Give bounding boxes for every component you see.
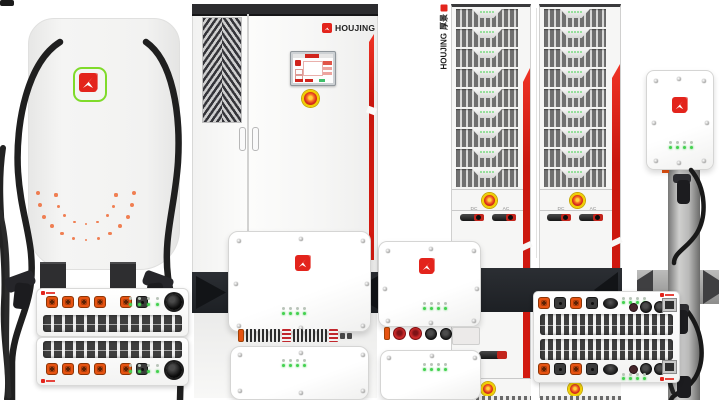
cooling-fan-icon	[166, 294, 182, 310]
status-led	[156, 303, 159, 306]
status-led	[629, 377, 632, 380]
led-pair	[129, 364, 132, 373]
cooling-fan-icon	[166, 362, 182, 378]
screw	[429, 247, 433, 251]
led-row	[622, 297, 646, 300]
connector-stripes	[317, 329, 327, 342]
vent-grille	[43, 315, 182, 332]
status-led	[289, 312, 292, 315]
status-led	[444, 307, 447, 310]
status-led	[622, 297, 625, 300]
wide-power-module	[533, 291, 680, 383]
status-led	[643, 297, 646, 300]
houjing-bird-icon	[422, 261, 431, 271]
mini-logo-icon	[660, 377, 664, 381]
connector-orange	[538, 363, 550, 375]
status-led	[282, 359, 285, 362]
pedestal-gun-body	[677, 180, 690, 204]
status-led	[147, 370, 150, 373]
screw	[299, 351, 303, 355]
screw	[472, 319, 476, 323]
screw	[475, 287, 479, 291]
status-led	[622, 377, 625, 380]
connector-maroon	[629, 303, 638, 312]
screw	[237, 324, 241, 328]
connector-orange	[46, 296, 58, 308]
connector-dark	[554, 363, 566, 375]
status-leds	[423, 302, 447, 310]
houjing-mini-logo	[660, 377, 674, 381]
status-led	[303, 312, 306, 315]
round-connectors-top	[629, 301, 666, 313]
square-connector	[663, 361, 676, 373]
status-led	[129, 303, 132, 306]
vent-grille	[540, 314, 673, 335]
status-led	[423, 307, 426, 310]
status-led	[129, 297, 132, 300]
screw	[386, 249, 390, 253]
status-led	[282, 312, 285, 315]
screw	[473, 356, 477, 360]
status-led	[423, 368, 426, 371]
mini-logo-icon	[660, 293, 664, 297]
status-led	[156, 297, 159, 300]
square-connector	[663, 299, 676, 311]
connector-row-top	[538, 297, 598, 309]
led-row	[423, 302, 447, 305]
led-row	[282, 307, 306, 310]
screw	[234, 282, 238, 286]
status-led	[636, 373, 639, 376]
status-leds	[282, 359, 306, 367]
vent-grille	[540, 339, 673, 360]
led-row	[622, 377, 646, 380]
status-led	[622, 301, 625, 304]
mini-logo-icon	[41, 291, 45, 295]
connector-small	[347, 333, 352, 339]
rotary-knob-icon	[603, 298, 618, 309]
connector-orange	[570, 363, 582, 375]
rectifier-module-stack	[34, 287, 189, 387]
mini-logo-text	[46, 292, 55, 294]
screw	[383, 287, 387, 291]
status-led	[629, 373, 632, 376]
screw	[237, 239, 241, 243]
connector-orange	[78, 296, 90, 308]
status-led	[282, 307, 285, 310]
houjing-mini-logo	[660, 293, 674, 297]
led-pair	[129, 297, 132, 306]
status-led	[147, 364, 150, 367]
connector-stripes	[270, 329, 280, 342]
status-led	[636, 377, 639, 380]
status-led	[444, 363, 447, 366]
status-led	[303, 364, 306, 367]
connector-stripes	[258, 329, 268, 342]
connector-orange-cap	[238, 329, 244, 342]
led-pair	[156, 364, 159, 373]
connector-orange	[46, 363, 58, 375]
status-led	[430, 307, 433, 310]
status-led-groups	[129, 297, 159, 306]
mini-logo-text	[665, 294, 674, 296]
houjing-mini-logo	[41, 291, 55, 295]
status-led	[430, 302, 433, 305]
terminal-cover	[452, 327, 480, 345]
connector-gap	[110, 302, 116, 303]
status-led	[138, 297, 141, 300]
mini-logo-text	[46, 380, 55, 382]
mini-logo-icon	[41, 379, 45, 383]
led-row	[622, 373, 646, 376]
houjing-mini-logo	[41, 379, 55, 383]
status-led	[289, 364, 292, 367]
status-led	[437, 302, 440, 305]
status-led	[282, 364, 285, 367]
product-collage: HOUJING HOUJING 厚景	[0, 0, 719, 400]
connector-orange	[78, 363, 90, 375]
connector-stripes	[293, 329, 303, 342]
connector-dark-circle	[440, 328, 452, 340]
status-led	[129, 364, 132, 367]
screw	[238, 353, 242, 357]
screw	[429, 321, 433, 325]
connector-dark	[554, 297, 566, 309]
mini-logo-text	[665, 378, 674, 380]
wallbox-inverter	[228, 231, 371, 332]
status-led	[423, 302, 426, 305]
screw	[299, 391, 303, 395]
status-led	[629, 297, 632, 300]
screw	[387, 356, 391, 360]
status-led	[147, 297, 150, 300]
connector-dark-circle	[640, 301, 652, 313]
connector-row-bottom	[538, 363, 598, 375]
status-led	[303, 307, 306, 310]
connector-red-bars	[329, 329, 338, 342]
screw	[361, 324, 365, 328]
connector-dark-circle	[425, 328, 437, 340]
status-led	[289, 359, 292, 362]
wallbox-inverter-lower	[230, 346, 369, 400]
rotary-knob-icon	[603, 364, 618, 375]
status-led	[437, 307, 440, 310]
wallbox-module-lower	[380, 350, 481, 400]
wallbox-module	[378, 241, 481, 327]
status-leds	[282, 307, 306, 315]
status-leds	[423, 363, 447, 371]
houjing-logo	[295, 255, 310, 271]
connector-gap	[110, 369, 116, 370]
connector-orange	[570, 297, 582, 309]
status-led	[622, 373, 625, 376]
status-led	[296, 312, 299, 315]
screw	[386, 319, 390, 323]
status-led	[296, 364, 299, 367]
status-led	[296, 307, 299, 310]
screw	[238, 389, 242, 393]
status-led	[643, 377, 646, 380]
status-leds	[622, 373, 646, 380]
status-led	[430, 363, 433, 366]
status-led	[636, 297, 639, 300]
screw	[472, 249, 476, 253]
connector-red-circle	[409, 327, 422, 340]
screw	[361, 389, 365, 393]
connector-orange	[94, 363, 106, 375]
connector-orange	[62, 296, 74, 308]
screw	[361, 239, 365, 243]
status-led	[156, 370, 159, 373]
led-pair	[138, 364, 141, 373]
led-row	[423, 363, 447, 366]
led-row	[423, 368, 447, 371]
led-pair	[156, 297, 159, 306]
status-led	[138, 364, 141, 367]
screw	[299, 237, 303, 241]
connector-orange	[94, 296, 106, 308]
connector-red-circle	[393, 327, 406, 340]
connector-red-bars	[282, 329, 291, 342]
connector-orange	[62, 363, 74, 375]
status-led	[296, 359, 299, 362]
rectifier-module	[36, 288, 189, 337]
rectifier-module	[36, 337, 189, 386]
connector-dark	[586, 297, 598, 309]
connector-stripes	[305, 329, 315, 342]
led-pair	[147, 297, 150, 306]
led-row	[282, 364, 306, 367]
status-led	[129, 370, 132, 373]
status-led	[156, 364, 159, 367]
screw	[361, 353, 365, 357]
led-row	[282, 312, 306, 315]
status-led	[423, 363, 426, 366]
screw	[430, 354, 434, 358]
status-led	[138, 303, 141, 306]
connector-stripes	[246, 329, 256, 342]
status-led	[138, 370, 141, 373]
status-led	[289, 307, 292, 310]
status-led	[147, 303, 150, 306]
led-row	[282, 359, 306, 362]
vent-grille	[43, 341, 182, 358]
led-pair	[147, 364, 150, 373]
screw	[365, 282, 369, 286]
houjing-logo	[419, 258, 434, 274]
status-led	[303, 359, 306, 362]
status-led	[430, 368, 433, 371]
status-led	[444, 302, 447, 305]
led-pair	[138, 297, 141, 306]
led-row	[423, 307, 447, 310]
houjing-bird-icon	[298, 258, 307, 268]
connector-orange	[538, 297, 550, 309]
terminal-row	[238, 329, 352, 342]
status-led	[437, 363, 440, 366]
status-led	[643, 373, 646, 376]
connector-small	[340, 333, 345, 339]
status-led	[444, 368, 447, 371]
status-led-groups	[129, 364, 159, 373]
connector-dark	[586, 363, 598, 375]
status-led	[437, 368, 440, 371]
connector-orange-cap	[384, 327, 390, 340]
